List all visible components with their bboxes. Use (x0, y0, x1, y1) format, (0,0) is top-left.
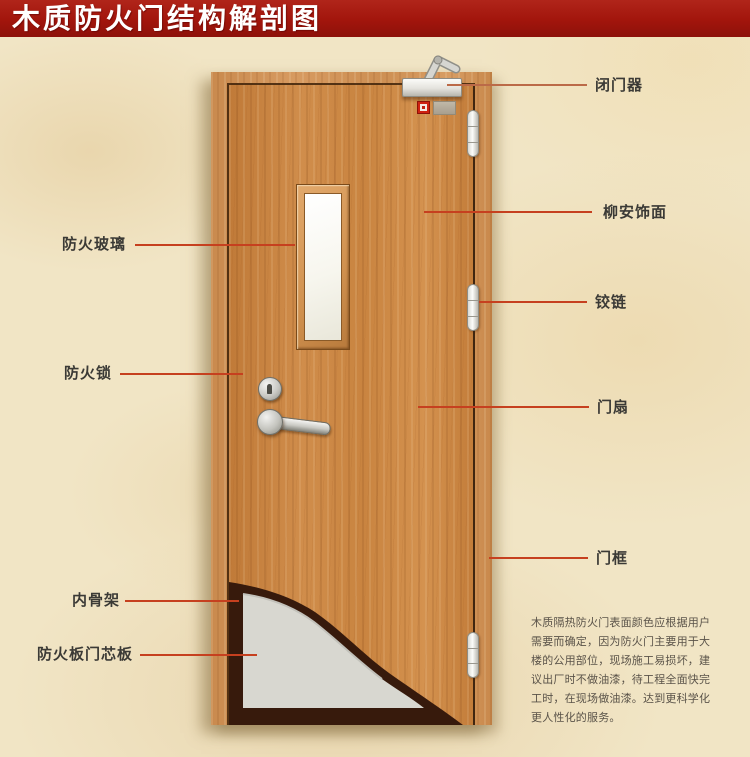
leader-line-inner-skeleton (125, 600, 239, 602)
label-inner-skeleton: 内骨架 (72, 592, 120, 609)
fire-indicator-dot (422, 106, 425, 109)
leader-line-fire-glass (135, 244, 295, 246)
keyhole-icon (267, 384, 272, 394)
label-door-frame: 门框 (596, 550, 628, 567)
label-door-closer: 闭门器 (595, 77, 643, 94)
page-title: 木质防火门结构解剖图 (12, 5, 322, 33)
description-line: 木质隔热防火门表面颜色应根据用户 (531, 614, 717, 633)
cutaway-section (229, 570, 475, 725)
label-fire-core-board: 防火板门芯板 (37, 646, 133, 663)
door-frame (211, 72, 492, 725)
hinge-top (467, 110, 479, 157)
hinge-middle (467, 284, 479, 331)
label-fire-lock: 防火锁 (64, 365, 112, 382)
leader-line-door-frame (489, 557, 588, 559)
description-line: 工时，在现场做油漆。达到更科学化 (531, 690, 717, 709)
leader-line-fire-core-board (140, 654, 257, 656)
description-line: 楼的公用部位，现场施工易损坏，建 (531, 652, 717, 671)
hinge-bottom (467, 632, 479, 678)
description-line: 需要而确定，因为防火门主要用于大 (531, 633, 717, 652)
fire-lock-cylinder (258, 377, 282, 401)
door-closer-body (402, 78, 462, 97)
door-handle-rose (257, 409, 283, 435)
description-line: 更人性化的服务。 (531, 709, 717, 728)
label-door-leaf: 门扇 (597, 399, 629, 416)
fire-indicator-badge (417, 101, 430, 114)
description-paragraph: 木质隔热防火门表面颜色应根据用户 需要而确定，因为防火门主要用于大 楼的公用部位… (531, 614, 717, 728)
label-fire-glass: 防火玻璃 (62, 236, 126, 253)
vision-panel-frame (296, 184, 350, 350)
title-banner: 木质防火门结构解剖图 (0, 0, 750, 37)
door-leaf (227, 83, 475, 725)
fire-glass (304, 193, 342, 341)
leader-line-fire-lock (120, 373, 243, 375)
label-hinge: 铰链 (595, 294, 627, 311)
certification-label (433, 101, 456, 115)
leader-line-door-leaf (418, 406, 589, 408)
leader-line-door-closer (447, 84, 587, 86)
description-line: 议出厂时不做油漆，待工程全面快完 (531, 671, 717, 690)
leader-line-lauan-veneer (424, 211, 592, 213)
leader-line-hinge (479, 301, 587, 303)
fire-core-board-region (243, 594, 424, 708)
label-lauan-veneer: 柳安饰面 (603, 204, 667, 221)
